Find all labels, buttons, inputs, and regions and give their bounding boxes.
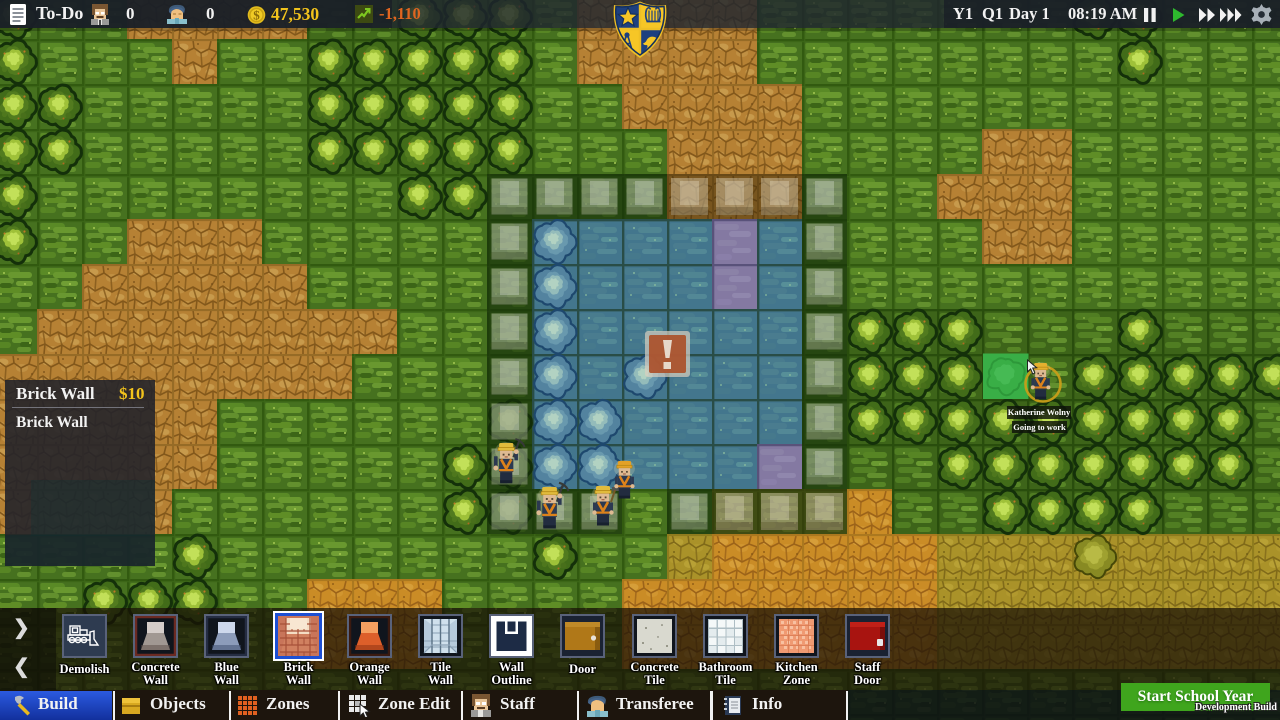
- svg-text:$: $: [253, 8, 260, 23]
